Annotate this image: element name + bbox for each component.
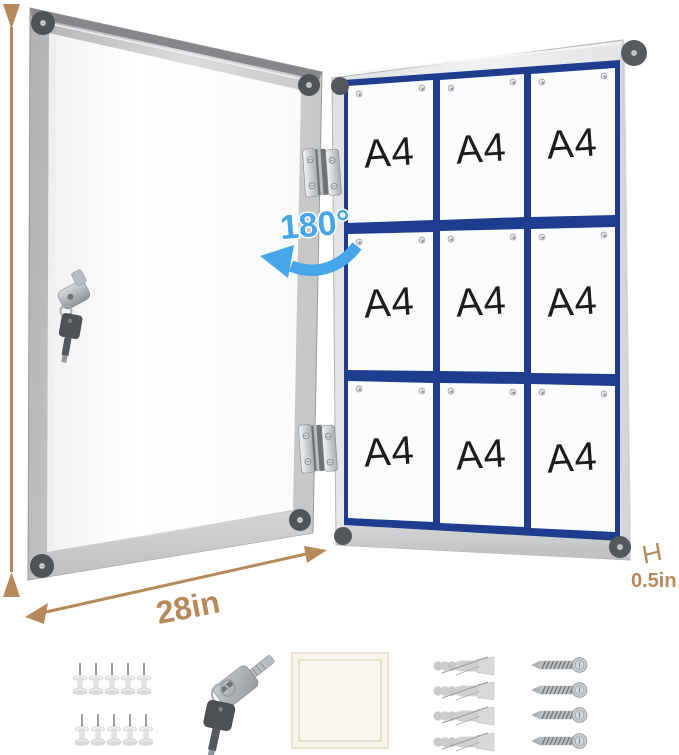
paper-cell: A4 xyxy=(348,381,433,522)
push-pin-icon xyxy=(539,79,545,85)
swing-angle-label: 180° xyxy=(278,203,351,247)
paper-size-label: A4 xyxy=(362,428,416,475)
push-pin-icon xyxy=(601,73,607,79)
push-pin-icon xyxy=(448,388,454,394)
push-pin-icon xyxy=(419,85,425,91)
product-illustration: 38in A4 A4 A4 xyxy=(0,0,679,755)
push-pin-icon xyxy=(539,389,545,395)
push-pin-icon xyxy=(419,237,425,243)
push-pin-icon xyxy=(448,236,454,242)
paper-size-label: A4 xyxy=(545,120,599,167)
paper-size-label: A4 xyxy=(545,278,599,325)
hinge xyxy=(298,423,337,473)
push-pins-group xyxy=(73,663,153,746)
push-pin-icon xyxy=(539,234,545,240)
push-pin-icon xyxy=(356,239,362,245)
push-pin-icon xyxy=(419,388,425,394)
paper-cell: A4 xyxy=(348,232,433,371)
paper-cell: A4 xyxy=(440,383,524,527)
push-pin-icon xyxy=(448,85,454,91)
board-panel: A4 A4 A4 A4 A4 xyxy=(331,40,647,560)
push-pin-icon xyxy=(356,386,362,392)
screws-group xyxy=(531,658,587,749)
push-pin-icon xyxy=(510,389,516,395)
arrow-down-icon xyxy=(3,572,20,597)
paper-size-label: A4 xyxy=(362,129,416,176)
push-pin-icon xyxy=(356,91,362,97)
paper-cell: A4 xyxy=(440,229,524,372)
accessories xyxy=(73,648,587,755)
paper-cell: A4 xyxy=(531,227,615,374)
paper-cell: A4 xyxy=(531,68,615,217)
width-label: 28in xyxy=(153,583,223,631)
depth-dimension: 0.5in xyxy=(631,543,677,592)
push-pin-icon xyxy=(601,232,607,238)
paper-size-label: A4 xyxy=(454,431,508,478)
push-pin-icon xyxy=(510,79,516,85)
hinge xyxy=(302,147,341,197)
paper-size-label: A4 xyxy=(454,278,508,325)
door-panel xyxy=(28,8,322,580)
depth-label: 0.5in xyxy=(631,570,677,592)
arrow-left-icon xyxy=(25,603,48,624)
paper-size-label: A4 xyxy=(454,125,508,172)
arrow-right-icon xyxy=(304,546,327,563)
arrow-up-icon xyxy=(3,4,20,29)
paper-cell: A4 xyxy=(440,74,524,220)
paper-size-label: A4 xyxy=(362,279,416,326)
wall-anchors-group xyxy=(433,657,494,751)
paper-cell: A4 xyxy=(348,80,433,223)
paper-cell: A4 xyxy=(531,384,615,532)
adhesive-pad xyxy=(292,653,388,748)
notice-board-scene: 38in A4 A4 A4 xyxy=(0,0,679,755)
push-pin-icon xyxy=(601,391,607,397)
keys-group xyxy=(197,648,280,755)
paper-size-label: A4 xyxy=(545,434,599,481)
push-pin-icon xyxy=(510,234,516,240)
